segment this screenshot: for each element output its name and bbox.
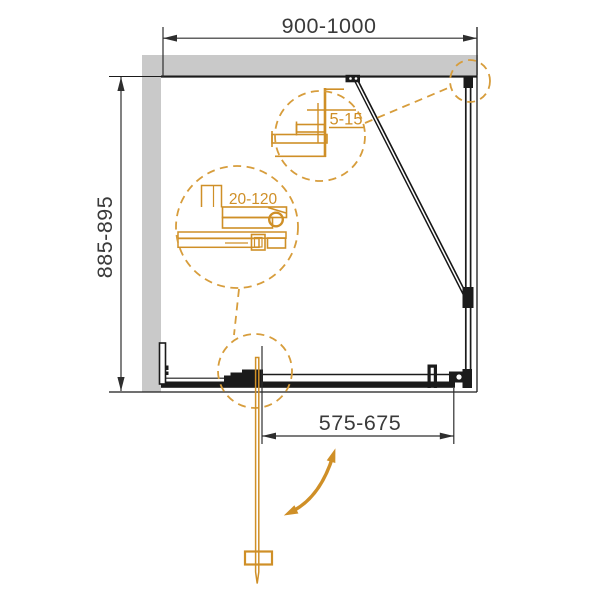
shower-enclosure-drawing: 900-1000 885-895 575-675 5-15 20-120 xyxy=(0,0,600,600)
door-pivot-hardware xyxy=(242,370,263,384)
top-wall xyxy=(142,55,478,75)
middle-detail-callout-circle xyxy=(176,166,298,288)
door-opening-dimension-label: 575-675 xyxy=(319,411,401,435)
technical-drawing-page: 900-1000 885-895 575-675 5-15 20-120 xyxy=(0,0,600,600)
callout-connector-line xyxy=(365,88,448,123)
support-bar xyxy=(346,75,474,308)
left-wall xyxy=(142,55,161,392)
callout-connector-line xyxy=(234,289,239,335)
bottom-profile xyxy=(161,382,455,388)
depth-dimension-label: 885-895 xyxy=(93,196,117,278)
middle-detail-label: 20-120 xyxy=(229,191,278,208)
top-detail-label: 5-15 xyxy=(329,111,362,129)
right-fixed-glass-panel xyxy=(464,76,474,373)
support-bar-wall-bracket xyxy=(346,75,361,83)
support-bar-glass-clamp xyxy=(463,287,474,308)
top-detail-callout-circle xyxy=(275,91,365,181)
door-pivot-hardware xyxy=(231,373,243,382)
width-dimension-label: 900-1000 xyxy=(282,14,377,38)
depth-dimension: 885-895 xyxy=(93,77,125,391)
door-swing-arrow xyxy=(284,448,336,515)
door-pivot-hardware xyxy=(224,376,231,382)
panel-top-wall-bracket xyxy=(464,76,474,89)
bottom-glass-assembly xyxy=(161,365,472,389)
